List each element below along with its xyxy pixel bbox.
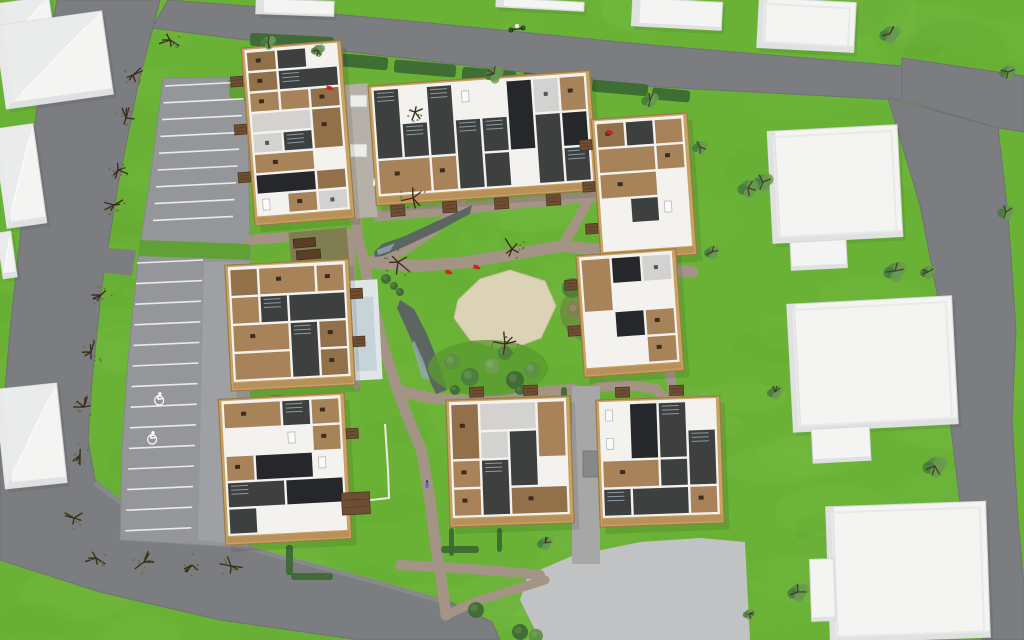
- furniture-bed: [288, 432, 296, 443]
- twig-dot: [124, 69, 126, 71]
- apartment-room: [617, 337, 647, 363]
- twig-dot: [82, 512, 84, 514]
- apartment-room: [630, 403, 658, 458]
- twig-dot: [151, 559, 153, 561]
- skylight-stripe: [692, 437, 709, 438]
- furniture-table: [259, 99, 264, 103]
- twig-dot: [116, 209, 118, 211]
- twig-dot: [407, 115, 409, 117]
- bush-light: [452, 387, 457, 392]
- twig-dot: [413, 189, 415, 191]
- deck-terrace: [669, 385, 683, 395]
- pedestrian: [373, 178, 376, 186]
- furniture-table: [241, 412, 246, 416]
- twig-dot: [511, 352, 513, 354]
- raised-planter: [296, 249, 321, 260]
- twig-dot: [65, 511, 67, 513]
- facet-west: [631, 0, 640, 26]
- apartment-room: [535, 113, 564, 183]
- apartment-room: [247, 51, 276, 71]
- twig-dot: [400, 199, 402, 201]
- apartment-room: [233, 323, 289, 351]
- apartment-room: [315, 148, 344, 168]
- twig-dot: [404, 267, 406, 269]
- twig-dot: [78, 520, 80, 522]
- apartment-room: [432, 156, 458, 191]
- apartment-room: [511, 150, 537, 185]
- twig-dot: [231, 557, 233, 559]
- building-mass: [787, 296, 958, 432]
- twig-dot: [122, 164, 124, 166]
- twig-dot: [424, 191, 426, 193]
- head: [373, 178, 375, 180]
- twig-dot: [110, 294, 112, 296]
- twig-dot: [98, 561, 100, 563]
- twig-dot: [522, 248, 524, 250]
- furniture-table: [440, 168, 445, 172]
- twig-dot: [125, 124, 127, 126]
- entrance-canopy: [350, 95, 367, 107]
- apartment-room: [224, 401, 281, 428]
- apartment-room: [510, 431, 538, 486]
- apartment-room: [615, 310, 645, 336]
- twig-dot: [77, 443, 79, 445]
- twig-dot: [184, 564, 186, 566]
- twig-dot: [133, 559, 135, 561]
- apartment-room: [283, 130, 312, 150]
- twig-dot: [123, 202, 125, 204]
- apartment-room: [259, 266, 315, 294]
- person-blue: [426, 480, 429, 488]
- canopy: [647, 100, 655, 108]
- skylight-stripe: [485, 463, 502, 464]
- twig-dot: [101, 561, 103, 563]
- twig-dot: [109, 213, 111, 215]
- deck-terrace: [234, 124, 247, 135]
- apartment-room: [232, 297, 260, 324]
- twig-dot: [191, 553, 193, 555]
- branch: [114, 204, 120, 205]
- furniture-table: [319, 94, 324, 98]
- bush-light: [397, 289, 401, 293]
- twig-dot: [87, 402, 89, 404]
- apartment-room: [453, 461, 480, 488]
- apartment-room: [286, 477, 343, 504]
- twig-dot: [386, 270, 388, 272]
- apartment-room: [456, 119, 485, 189]
- bush-light: [531, 631, 537, 637]
- twig-dot: [225, 561, 227, 563]
- twig-dot: [175, 43, 177, 45]
- twig-dot: [104, 288, 106, 290]
- neighbor-building: [631, 0, 726, 34]
- apartment-room: [512, 486, 568, 514]
- twig-dot: [96, 297, 98, 299]
- twig-dot: [77, 517, 79, 519]
- apartment-room: [485, 152, 511, 187]
- twig-dot: [409, 271, 411, 273]
- twig-dot: [386, 258, 388, 260]
- twig-dot: [74, 454, 76, 456]
- twig-dot: [130, 111, 132, 113]
- twig-dot: [188, 568, 190, 570]
- apartment-room: [481, 432, 508, 459]
- twig-dot: [507, 349, 509, 351]
- furniture-table: [665, 153, 670, 157]
- twig-dot: [176, 46, 178, 48]
- apartment-building: [225, 258, 368, 398]
- twig-dot: [75, 461, 77, 463]
- apartment-room: [316, 264, 344, 291]
- apartment-room: [312, 107, 343, 148]
- twig-dot: [102, 564, 104, 566]
- red-item-dot: [478, 267, 481, 270]
- twig-dot: [111, 175, 113, 177]
- apartment-room: [248, 71, 277, 91]
- skylight-stripe: [485, 467, 502, 468]
- twig-dot: [516, 257, 518, 259]
- twig-dot: [415, 106, 417, 108]
- branch: [126, 118, 134, 119]
- furniture-table: [528, 496, 533, 500]
- bush-light: [569, 304, 576, 311]
- twig-dot: [140, 73, 142, 75]
- twig-dot: [224, 559, 226, 561]
- twig-dot: [235, 568, 237, 570]
- apartment-room: [581, 259, 612, 312]
- furniture-table: [325, 274, 330, 278]
- apartment-room: [537, 401, 565, 456]
- deck-terrace: [341, 492, 370, 515]
- apartment-room: [661, 459, 688, 486]
- twig-dot: [92, 339, 94, 341]
- twig-dot: [397, 249, 399, 251]
- grass-mottle: [364, 416, 437, 442]
- apartment-room: [612, 256, 642, 282]
- deck-terrace: [350, 288, 363, 299]
- raised-planter: [293, 237, 316, 248]
- furniture-bed: [262, 199, 270, 211]
- furniture-table: [321, 434, 326, 438]
- apartment-room: [656, 144, 684, 169]
- twig-dot: [492, 341, 494, 343]
- bush-light: [526, 364, 533, 371]
- twig-dot: [79, 410, 81, 412]
- twig-dot: [89, 414, 91, 416]
- twig-dot: [121, 113, 123, 115]
- apartment-room: [599, 146, 656, 173]
- twig-dot: [418, 114, 420, 116]
- apartment-room: [379, 158, 432, 194]
- deck-terrace: [469, 387, 483, 397]
- bush-light: [391, 283, 395, 287]
- apartment-room: [427, 85, 456, 155]
- twig-dot: [412, 120, 414, 122]
- twig-dot: [400, 191, 402, 193]
- apartment-room: [539, 458, 566, 485]
- apartment-room: [506, 80, 535, 150]
- apartment-room: [289, 292, 345, 320]
- twig-dot: [104, 554, 106, 556]
- bush-light: [470, 604, 477, 611]
- canopy: [1005, 72, 1013, 80]
- branch: [545, 537, 546, 543]
- furniture-table: [276, 277, 281, 281]
- apartment-room: [374, 89, 403, 159]
- skylight-stripe: [691, 433, 708, 434]
- twig-dot: [74, 402, 76, 404]
- annex-facet: [812, 617, 836, 622]
- apartment-room: [602, 199, 630, 224]
- bush-light: [514, 626, 521, 633]
- twig-dot: [197, 564, 199, 566]
- canopy: [925, 272, 933, 280]
- apartment-room: [604, 225, 632, 250]
- twig-dot: [120, 174, 122, 176]
- furniture-table: [568, 88, 573, 92]
- deck-terrace: [442, 201, 457, 213]
- furniture-table: [655, 318, 660, 322]
- twig-dot: [85, 352, 87, 354]
- apartment-room: [454, 489, 481, 516]
- deck-terrace: [546, 194, 561, 206]
- branch: [317, 50, 318, 56]
- canopy: [886, 34, 896, 44]
- twig-dot: [404, 274, 406, 276]
- twig-dot: [75, 520, 77, 522]
- furniture-item: [654, 265, 658, 269]
- body: [426, 482, 429, 488]
- hedge: [441, 546, 479, 553]
- furniture-table: [395, 171, 400, 175]
- neighbor-building: [757, 0, 860, 57]
- twig-dot: [97, 300, 99, 302]
- skylight-stripe: [607, 496, 624, 497]
- apartment-building: [595, 384, 729, 534]
- twig-dot: [112, 170, 114, 172]
- apartment-room: [687, 401, 714, 428]
- apartment-building: [368, 70, 604, 218]
- furniture-table: [657, 345, 662, 349]
- deck-terrace: [583, 181, 596, 192]
- twig-dot: [519, 248, 521, 250]
- apartment-building: [218, 392, 372, 552]
- furniture-table: [235, 465, 240, 469]
- building-annex: [810, 559, 836, 622]
- apartment-room: [284, 426, 312, 451]
- apartment-room: [229, 508, 257, 533]
- apartment-room: [564, 147, 590, 182]
- apartment-room: [453, 82, 506, 118]
- deck-terrace: [615, 387, 629, 397]
- twig-dot: [138, 83, 140, 85]
- deck-terrace: [238, 172, 251, 183]
- head: [426, 480, 428, 482]
- apartment-room: [317, 504, 345, 529]
- neighbor-building: [808, 501, 994, 640]
- apartment-room: [319, 320, 347, 347]
- furniture-table: [297, 199, 302, 203]
- apartment-room: [235, 351, 291, 379]
- twig-dot: [523, 241, 525, 243]
- bush-light: [486, 360, 493, 367]
- furniture-table: [461, 470, 466, 474]
- twig-dot: [420, 114, 422, 116]
- apartment-room: [626, 120, 654, 145]
- twig-dot: [144, 567, 146, 569]
- furniture-bed: [664, 201, 672, 212]
- furniture-table: [699, 495, 704, 499]
- body: [373, 180, 376, 186]
- twig-dot: [232, 569, 234, 571]
- twig-dot: [126, 81, 128, 83]
- furniture-table: [328, 330, 333, 334]
- twig-dot: [97, 286, 99, 288]
- branch: [230, 566, 231, 574]
- furniture-table: [256, 58, 261, 62]
- red-item-dot: [331, 88, 334, 91]
- canopy: [891, 271, 902, 282]
- canopy: [542, 543, 550, 551]
- rider: [515, 24, 520, 29]
- deck-terrace: [568, 326, 581, 337]
- twig-dot: [384, 257, 386, 259]
- deck-terrace: [346, 428, 359, 439]
- skylight-stripe: [485, 471, 502, 472]
- neighbor-building: [0, 10, 117, 113]
- furniture-table: [329, 358, 334, 362]
- red-item-dot: [450, 272, 453, 275]
- furniture-table: [273, 160, 278, 164]
- twig-dot: [138, 559, 140, 561]
- bush-light: [517, 387, 522, 392]
- twig-dot: [505, 336, 507, 338]
- furniture-bed: [461, 91, 469, 102]
- furniture-table: [320, 407, 325, 411]
- furniture-table: [460, 424, 465, 428]
- bush-light: [509, 374, 517, 382]
- furniture-table: [250, 334, 255, 338]
- apartment-room: [321, 348, 349, 375]
- apartment-room: [288, 191, 317, 211]
- furniture-table: [462, 499, 467, 503]
- twig-dot: [172, 43, 174, 45]
- apartment-room: [258, 505, 315, 532]
- apartment-room: [655, 118, 683, 143]
- twig-dot: [83, 346, 85, 348]
- apartment-room: [600, 172, 657, 199]
- apartment-room: [258, 194, 287, 214]
- twig-dot: [400, 196, 402, 198]
- twig-dot: [121, 115, 123, 117]
- apartment-room: [560, 76, 586, 111]
- deck-terrace: [230, 76, 243, 87]
- skylight-stripe: [692, 441, 709, 442]
- bush-light: [446, 356, 453, 363]
- skylight-stripe: [607, 492, 624, 493]
- furniture-item: [544, 92, 548, 96]
- twig-dot: [190, 575, 192, 577]
- canopy: [794, 592, 804, 602]
- twig-dot: [108, 168, 110, 170]
- skylight-stripe: [608, 500, 625, 501]
- apartment-room: [313, 425, 341, 450]
- deck-terrace: [390, 205, 405, 217]
- twig-dot: [416, 119, 418, 121]
- neighbor-building: [256, 0, 338, 20]
- branch: [797, 584, 798, 592]
- twig-dot: [73, 528, 75, 530]
- apartment-room: [597, 122, 625, 147]
- red-item-dot: [611, 132, 614, 135]
- furniture-table: [321, 122, 326, 126]
- apartment-room: [403, 122, 429, 157]
- furniture-bed: [606, 438, 613, 449]
- twig-dot: [126, 174, 128, 176]
- building-mass: [767, 125, 903, 244]
- apartment-room: [317, 169, 346, 189]
- twig-dot: [101, 298, 103, 300]
- apartment-room: [230, 269, 258, 296]
- apartment-room: [256, 453, 313, 480]
- apartment-room: [633, 221, 690, 248]
- apartment-room: [614, 281, 674, 310]
- canopy: [490, 74, 499, 83]
- facet-west: [256, 0, 265, 14]
- twig-dot: [83, 461, 85, 463]
- twig-dot: [221, 573, 223, 575]
- apartment-room: [280, 89, 309, 109]
- twig-dot: [407, 206, 409, 208]
- apartment-room: [277, 48, 306, 68]
- deck-terrace: [523, 385, 537, 395]
- furniture-item: [330, 197, 334, 201]
- furniture-table: [620, 470, 625, 474]
- apartment-building: [445, 384, 579, 534]
- twig-dot: [109, 207, 111, 209]
- apartment-room: [660, 195, 688, 220]
- twig-dot: [94, 355, 96, 357]
- twig-dot: [143, 556, 145, 558]
- canopy: [772, 392, 780, 400]
- twig-dot: [94, 359, 96, 361]
- apartment-room: [451, 404, 479, 459]
- apartment-room: [310, 87, 339, 107]
- hedge: [291, 573, 333, 580]
- deck-terrace: [585, 223, 598, 234]
- deck-terrace: [353, 336, 366, 347]
- apartment-room: [658, 170, 686, 195]
- apartment-room: [225, 428, 282, 455]
- furniture-item: [265, 141, 269, 145]
- apartment-room: [314, 451, 342, 476]
- skylight-stripe: [662, 406, 679, 407]
- twig-dot: [80, 458, 82, 460]
- twig-dot: [519, 244, 521, 246]
- furniture-table: [257, 79, 262, 83]
- site-plan-3d-viewport[interactable]: [0, 0, 1024, 640]
- twig-dot: [491, 345, 493, 347]
- twig-dot: [86, 395, 88, 397]
- twig-dot: [98, 358, 100, 360]
- twig-dot: [104, 201, 106, 203]
- apartment-room: [311, 398, 339, 423]
- twig-dot: [506, 252, 508, 254]
- apartment-room: [631, 197, 659, 222]
- twig-dot: [87, 449, 89, 451]
- apartment-room: [603, 460, 659, 488]
- apartment-room: [480, 402, 536, 430]
